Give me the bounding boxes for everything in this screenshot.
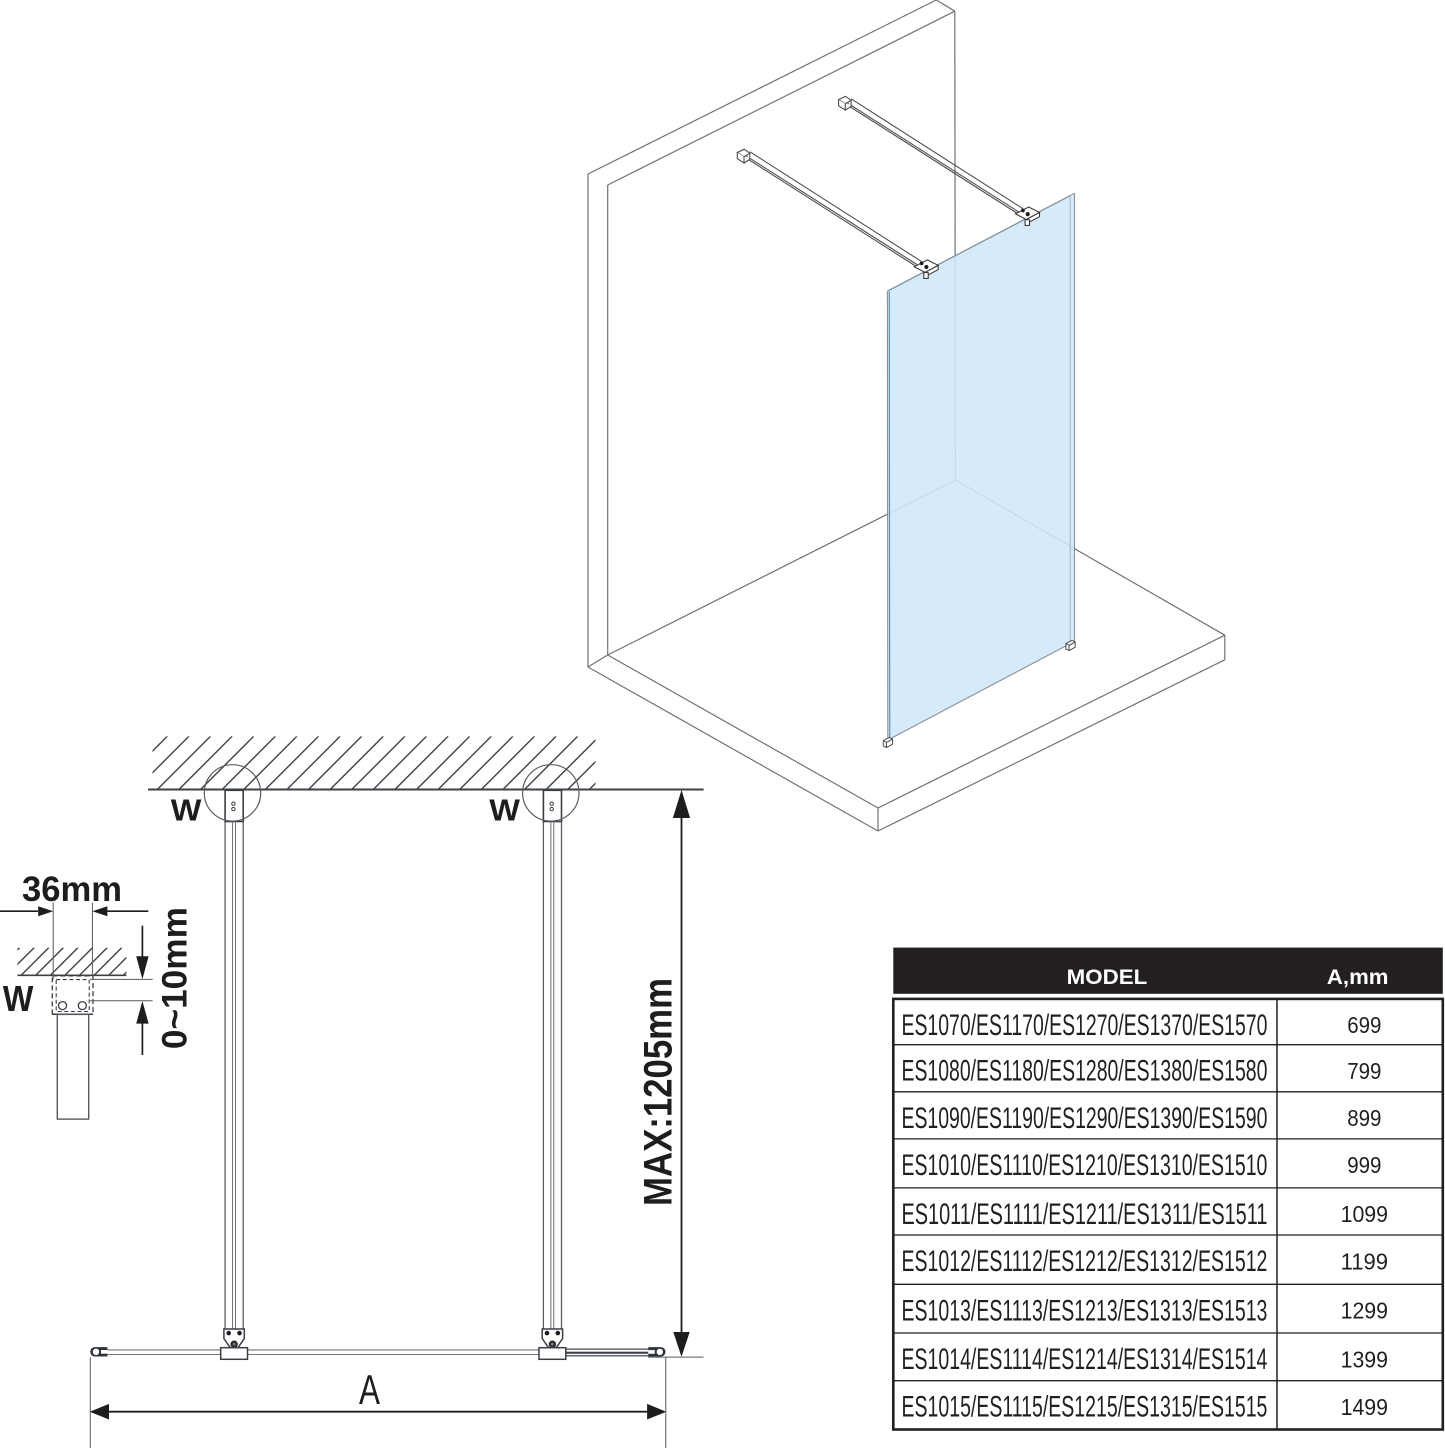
svg-text:899: 899 (1347, 1105, 1381, 1131)
svg-text:MAX:1205mm: MAX:1205mm (637, 978, 681, 1206)
svg-text:1399: 1399 (1341, 1346, 1388, 1372)
svg-text:36mm: 36mm (22, 870, 122, 909)
svg-text:W: W (3, 978, 34, 1019)
svg-text:W: W (171, 793, 202, 828)
svg-text:999: 999 (1347, 1152, 1381, 1178)
svg-text:ES1080/ES1180/ES1280/ES1380/ES: ES1080/ES1180/ES1280/ES1380/ES1580 (902, 1055, 1268, 1088)
svg-text:699: 699 (1347, 1012, 1381, 1038)
svg-text:MODEL: MODEL (1067, 965, 1148, 989)
svg-text:W: W (489, 793, 520, 828)
svg-text:1199: 1199 (1341, 1248, 1388, 1274)
svg-text:1499: 1499 (1341, 1394, 1388, 1420)
svg-text:ES1070/ES1170/ES1270/ES1370/ES: ES1070/ES1170/ES1270/ES1370/ES1570 (902, 1009, 1268, 1042)
svg-text:ES1014/ES1114/ES1214/ES1314/ES: ES1014/ES1114/ES1214/ES1314/ES1514 (902, 1343, 1268, 1376)
svg-text:A,mm: A,mm (1327, 965, 1389, 989)
svg-text:A: A (359, 1366, 380, 1413)
svg-text:1299: 1299 (1341, 1298, 1388, 1324)
svg-text:ES1013/ES1113/ES1213/ES1313/ES: ES1013/ES1113/ES1213/ES1313/ES1513 (902, 1294, 1268, 1327)
svg-text:ES1011/ES1111/ES1211/ES1311/ES: ES1011/ES1111/ES1211/ES1311/ES1511 (902, 1198, 1268, 1231)
svg-text:ES1090/ES1190/ES1290/ES1390/ES: ES1090/ES1190/ES1290/ES1390/ES1590 (902, 1102, 1268, 1135)
svg-text:799: 799 (1347, 1058, 1381, 1084)
svg-text:ES1015/ES1115/ES1215/ES1315/ES: ES1015/ES1115/ES1215/ES1315/ES1515 (902, 1391, 1268, 1424)
svg-text:ES1012/ES1112/ES1212/ES1312/ES: ES1012/ES1112/ES1212/ES1312/ES1512 (902, 1245, 1268, 1278)
svg-text:1099: 1099 (1341, 1201, 1388, 1227)
svg-text:ES1010/ES1110/ES1210/ES1310/ES: ES1010/ES1110/ES1210/ES1310/ES1510 (902, 1149, 1268, 1182)
svg-text:0~10mm: 0~10mm (156, 907, 195, 1049)
